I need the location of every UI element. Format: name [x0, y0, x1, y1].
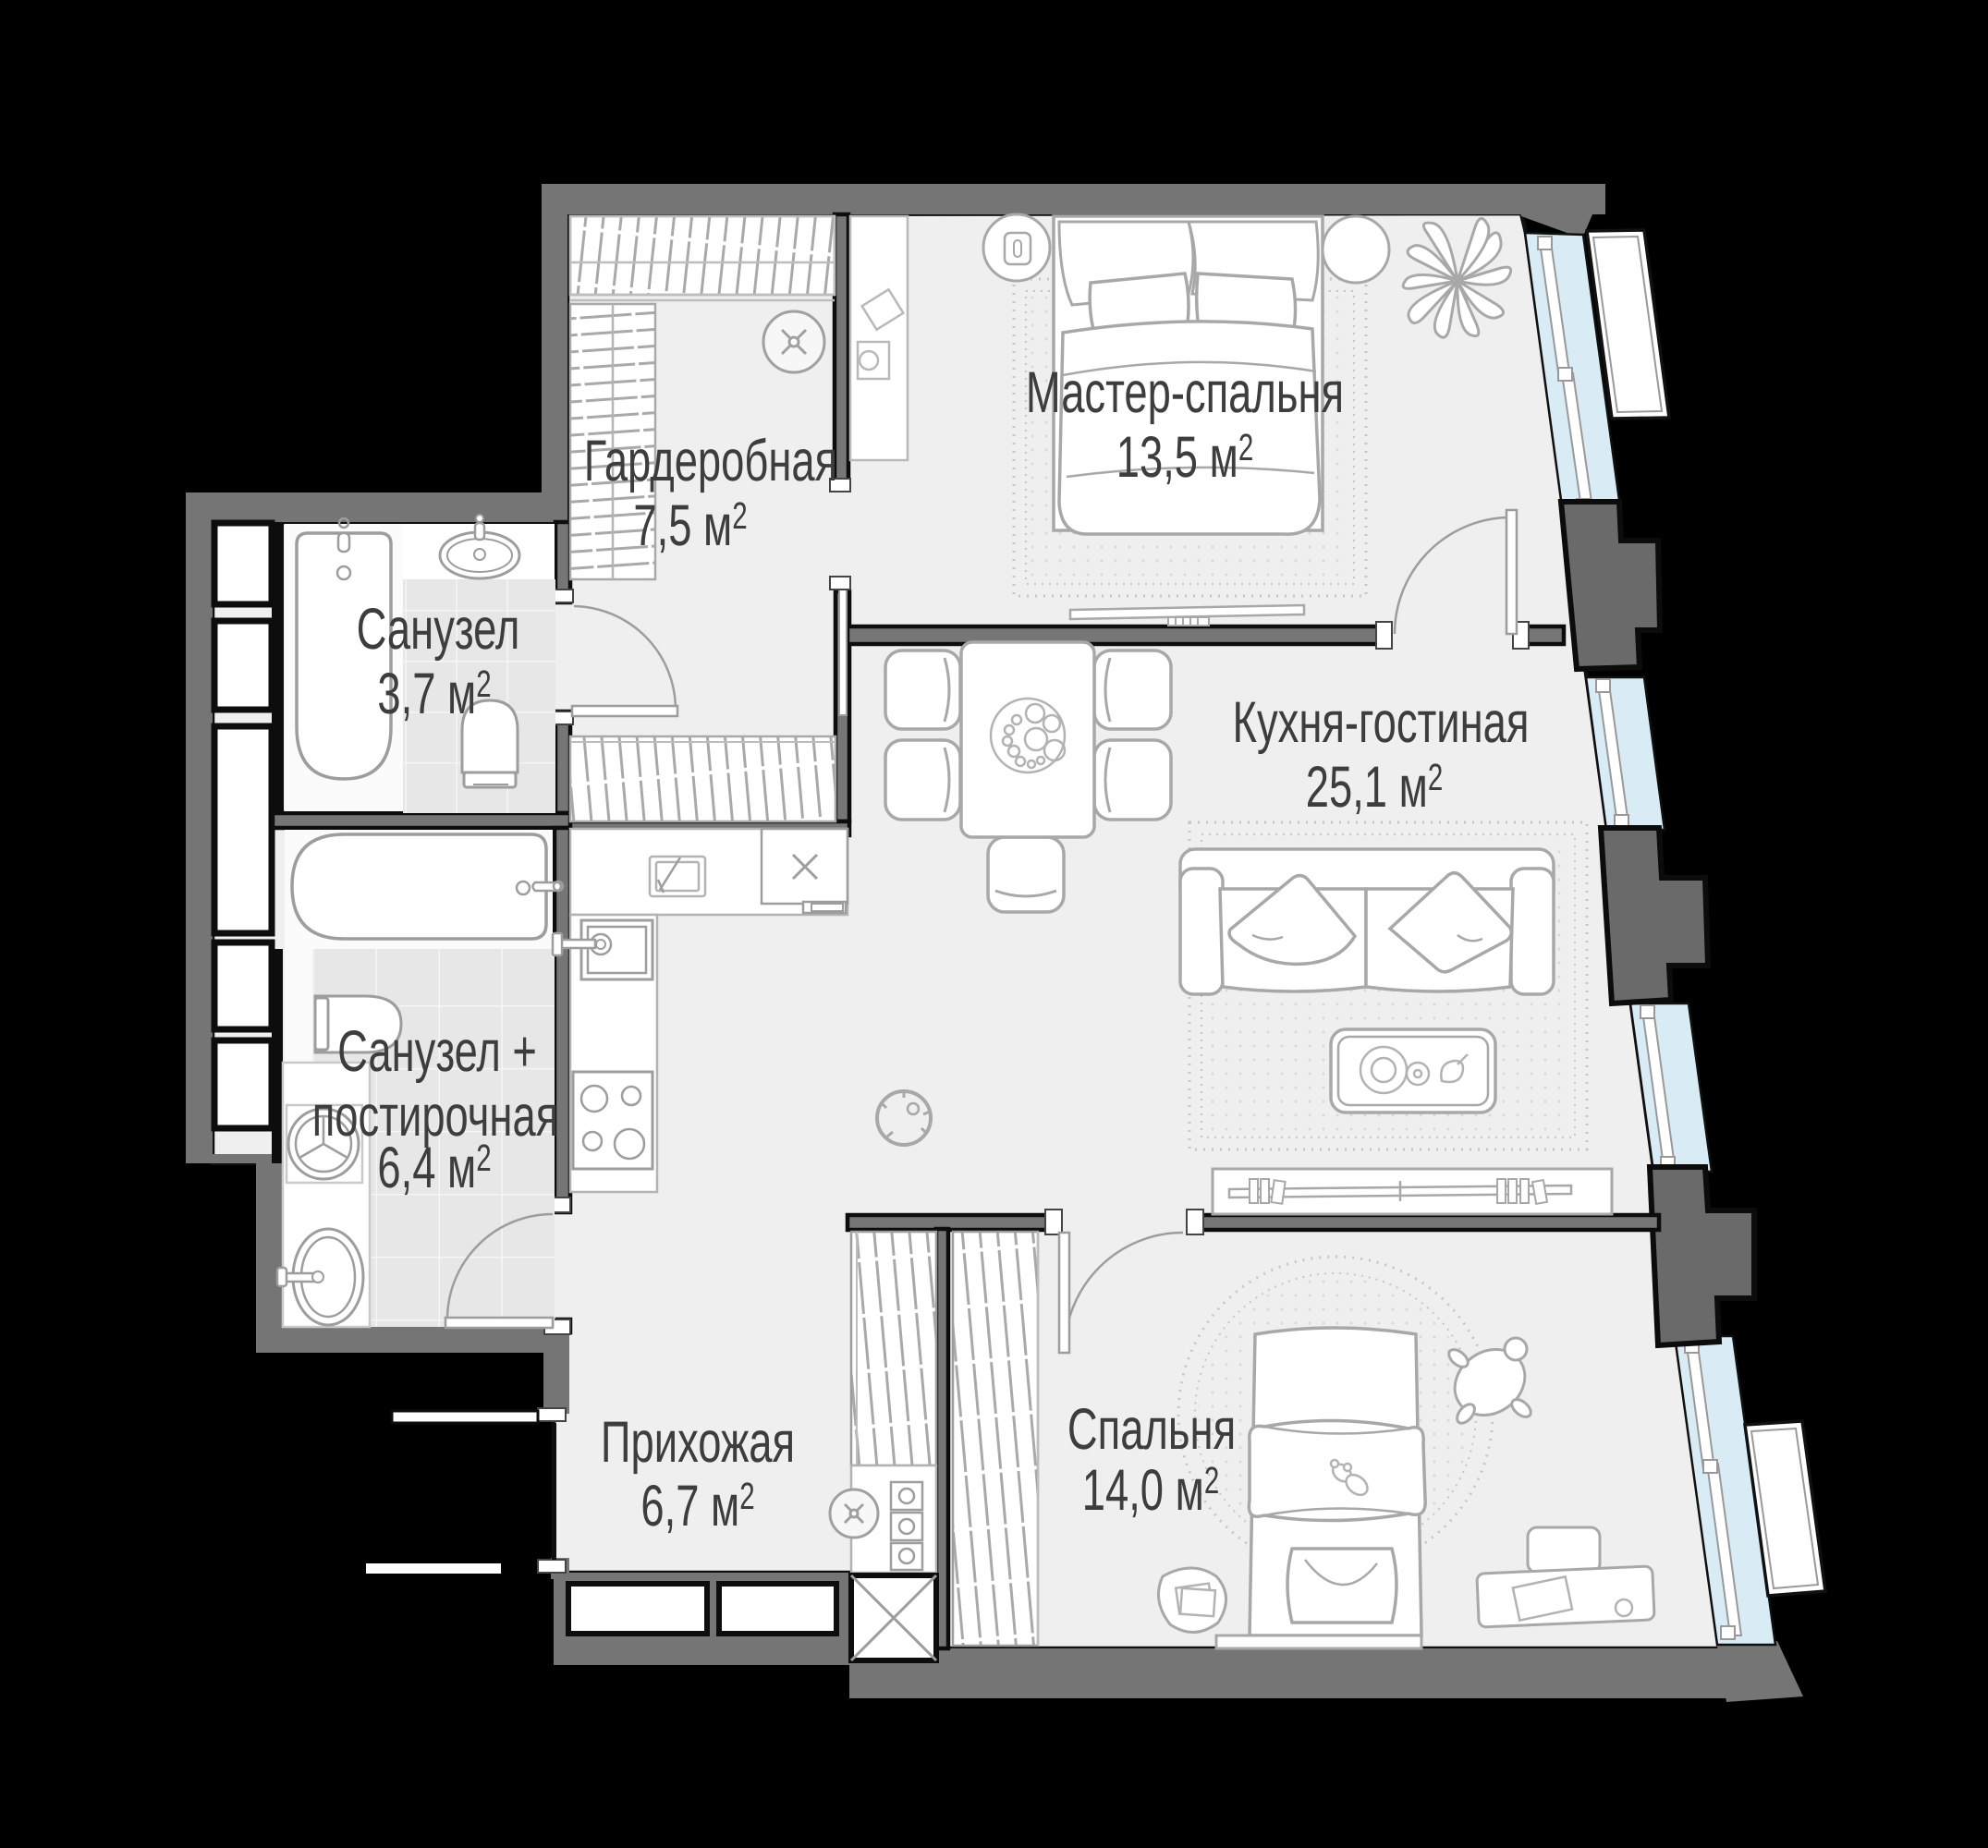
svg-text:Прихожая: Прихожая: [601, 1410, 795, 1475]
svg-text:7,5 м2: 7,5 м2: [633, 493, 747, 558]
svg-text:13,5 м2: 13,5 м2: [1116, 425, 1254, 490]
svg-text:Санузел +: Санузел +: [337, 1019, 537, 1084]
svg-text:3,7 м2: 3,7 м2: [377, 662, 491, 726]
svg-text:Мастер-спальня: Мастер-спальня: [1026, 360, 1344, 425]
svg-text:Спальня: Спальня: [1067, 1397, 1236, 1462]
svg-text:Кухня-гостиная: Кухня-гостиная: [1233, 690, 1530, 755]
svg-text:6,7 м2: 6,7 м2: [640, 1474, 754, 1538]
svg-text:Санузел: Санузел: [357, 597, 520, 662]
svg-text:Гардеробная: Гардеробная: [584, 429, 837, 493]
svg-text:25,1 м2: 25,1 м2: [1306, 755, 1444, 820]
svg-text:6,4 м2: 6,4 м2: [377, 1136, 491, 1200]
svg-text:14,0 м2: 14,0 м2: [1082, 1458, 1220, 1523]
